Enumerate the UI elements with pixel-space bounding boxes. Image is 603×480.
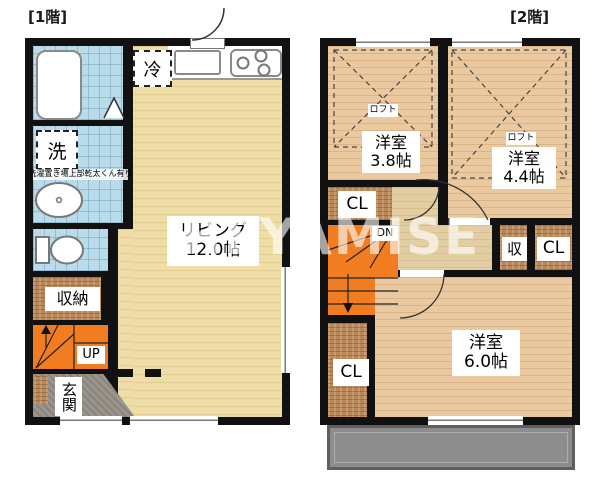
- west-loft-label: ロフト: [368, 104, 398, 117]
- shoe-cabinet: [34, 376, 48, 404]
- south-room-label: 洋室 6.0帖: [452, 330, 520, 376]
- hall-upper: [392, 187, 438, 226]
- stairs-up-label: UP: [77, 346, 105, 364]
- east-loft-label: ロフト: [506, 132, 536, 145]
- west-room-name: 洋室: [375, 134, 407, 152]
- south-room-door-gap: [400, 270, 444, 277]
- entry-door-leaf: [190, 38, 225, 49]
- closet-mid-label: CL: [338, 191, 376, 218]
- east-room-label: 洋室 4.4帖: [492, 147, 556, 189]
- south-room-window: [428, 416, 523, 425]
- closet-bottom-label: CL: [333, 359, 369, 386]
- living-name: リビング: [179, 222, 247, 241]
- west-room-window: [356, 38, 430, 47]
- entry-door-arc: [192, 8, 224, 40]
- floorplan-canvas: [1階] [2階]: [0, 0, 603, 480]
- laundry-note: 洗濯置き場上部乾太くん有り: [33, 169, 128, 180]
- balcony: [327, 425, 575, 470]
- fridge-label: 冷: [133, 50, 172, 87]
- east-room-size: 4.4帖: [503, 168, 544, 186]
- hallway: [398, 225, 492, 270]
- living-room-extension: [118, 229, 133, 417]
- toilet-room: [33, 229, 108, 271]
- south-room-name: 洋室: [469, 334, 503, 353]
- living-size: 12.0帖: [186, 241, 241, 260]
- storage-label-1f: 収納: [45, 287, 100, 311]
- living-side-window: [281, 267, 290, 373]
- living-window: [130, 416, 218, 425]
- east-room-window: [452, 38, 522, 47]
- bathtub: [36, 50, 82, 120]
- south-room-size: 6.0帖: [464, 353, 508, 372]
- floor1-title: [1階]: [28, 6, 67, 27]
- floor2-title: [2階]: [510, 6, 549, 27]
- kitchen-counter: [168, 46, 282, 80]
- storage-small-label: 収: [502, 237, 527, 261]
- entrance-label: 玄関: [55, 377, 82, 416]
- west-room-size: 3.8帖: [370, 152, 411, 170]
- west-room-label: 洋室 3.8帖: [362, 131, 420, 173]
- entrance-door-gap: [60, 416, 122, 425]
- stairs-down-label: DN: [372, 226, 398, 241]
- east-room-door-gap: [450, 218, 490, 225]
- closet-right-label: CL: [537, 237, 570, 261]
- balcony-inner-line: [334, 432, 568, 463]
- laundry-label: 洗: [36, 130, 78, 170]
- east-room-name: 洋室: [508, 150, 540, 168]
- living-label: リビング 12.0帖: [167, 216, 259, 266]
